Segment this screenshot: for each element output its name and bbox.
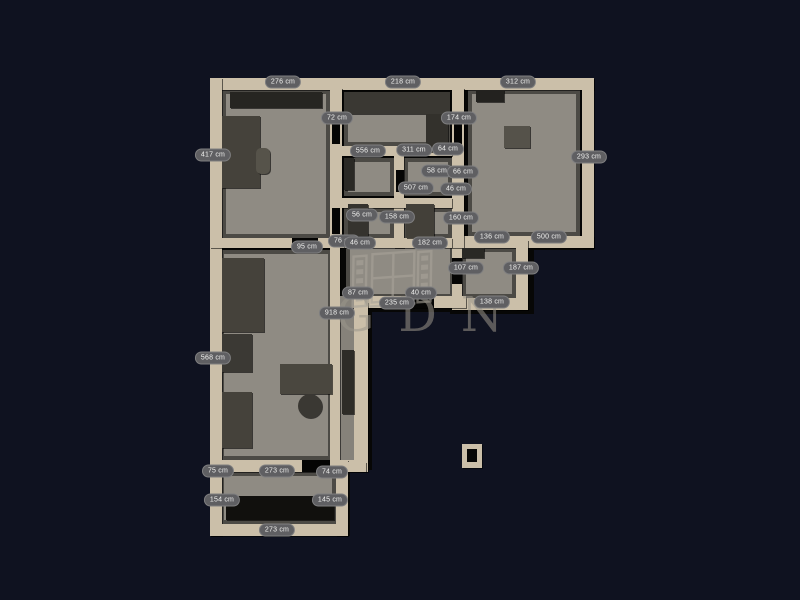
dimension-label: 95 cm <box>291 241 323 254</box>
dimension-label: 312 cm <box>500 76 536 89</box>
floor-top-right-room <box>468 90 580 236</box>
dimension-label: 64 cm <box>432 143 464 156</box>
wall-stub-bottom-room <box>348 462 366 472</box>
dimension-label: 154 cm <box>204 494 240 507</box>
furniture-table <box>504 126 530 148</box>
furniture-chair <box>298 394 322 418</box>
floorplan-screenshot: { "watermark": { "text": "GDN" }, "color… <box>0 0 800 600</box>
dimension-label: 293 cm <box>571 151 607 164</box>
furniture-kitchen-counter <box>344 92 450 114</box>
floorplan-canvas: GDN 276 cm218 cm312 cm417 cm568 cm293 cm… <box>0 0 800 600</box>
dimension-label: 46 cm <box>344 237 376 250</box>
dimension-label: 72 cm <box>321 112 353 125</box>
dimension-label: 182 cm <box>412 237 448 250</box>
dimension-label: 46 cm <box>440 183 472 196</box>
dimension-label: 311 cm <box>396 144 432 157</box>
wall-cross-left <box>210 238 344 248</box>
furniture-corner-band <box>476 90 504 102</box>
wall-pillar <box>462 444 482 468</box>
dimension-label: 87 cm <box>342 287 374 300</box>
dimension-label: 174 cm <box>441 112 477 125</box>
dimension-label: 56 cm <box>346 209 378 222</box>
dimension-label: 500 cm <box>531 231 567 244</box>
dimension-label: 75 cm <box>202 465 234 478</box>
dimension-label: 158 cm <box>379 211 415 224</box>
dimension-label: 417 cm <box>195 149 231 162</box>
dimension-label: 138 cm <box>474 296 510 309</box>
dimension-label: 160 cm <box>443 212 479 225</box>
dimension-label: 187 cm <box>503 262 539 275</box>
furniture-wardrobe <box>222 258 264 332</box>
furniture-bath-bar <box>344 158 354 190</box>
dimension-label: 218 cm <box>385 76 421 89</box>
dimension-label: 273 cm <box>259 524 295 537</box>
dimension-label: 74 cm <box>316 466 348 479</box>
furniture-shelf <box>230 92 322 108</box>
dimension-label: 276 cm <box>265 76 301 89</box>
pillar-core <box>467 449 477 462</box>
dimension-label: 107 cm <box>448 262 484 275</box>
door-opening <box>332 208 340 234</box>
furniture-knob <box>256 148 270 174</box>
dimension-label: 235 cm <box>379 297 415 310</box>
furniture-corridor-block <box>342 350 354 414</box>
dimension-label: 145 cm <box>312 494 348 507</box>
furniture-wardrobe <box>222 392 252 448</box>
dimension-label: 556 cm <box>350 145 386 158</box>
dimension-label: 507 cm <box>398 182 434 195</box>
furniture-room-corner <box>462 248 484 258</box>
furniture-desk <box>280 364 332 394</box>
dimension-label: 568 cm <box>195 352 231 365</box>
dimension-label: 273 cm <box>259 465 295 478</box>
wall-wing-inner <box>330 248 340 462</box>
dimension-label: 136 cm <box>474 231 510 244</box>
dimension-label: 918 cm <box>319 307 355 320</box>
dimension-label: 66 cm <box>447 166 479 179</box>
